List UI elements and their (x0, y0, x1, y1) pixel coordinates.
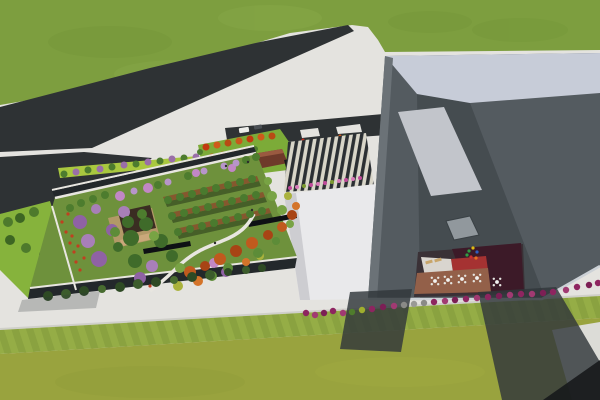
flowering-shrub (452, 297, 458, 303)
flowering-shrub (463, 296, 469, 302)
garden-tree (264, 177, 272, 185)
garden-tree (131, 188, 138, 195)
patio-table-set (458, 275, 467, 284)
ground-flower (68, 241, 71, 244)
garden-tree (89, 195, 97, 203)
flowering-shrub (574, 284, 580, 290)
bush (29, 207, 39, 217)
garden-tree (188, 190, 196, 198)
bush (39, 250, 49, 260)
garden-tree (168, 212, 176, 220)
curb-line (0, 295, 600, 329)
scene-canvas (0, 0, 600, 400)
flowering-shrub (391, 303, 397, 309)
garden-tree (139, 217, 153, 231)
striped-plaza (284, 133, 374, 192)
ground-flower (66, 212, 69, 215)
garden-north-facade (52, 147, 257, 198)
garden-tree (209, 258, 219, 268)
street-tree (79, 286, 89, 296)
chair (437, 283, 439, 285)
playground-equipment (469, 255, 472, 258)
street-tree (121, 162, 128, 169)
street-tree (85, 167, 92, 174)
flowering-shrub (359, 307, 365, 313)
footpath-bottom-right (552, 322, 600, 400)
chair (450, 276, 452, 278)
person (225, 165, 227, 167)
chair (473, 280, 475, 282)
garden-tree (228, 164, 236, 172)
planter-flower (349, 136, 352, 139)
chair (450, 282, 452, 284)
patio-table-set (431, 277, 440, 286)
flowering-shrub (431, 299, 437, 305)
flowering-shrub (303, 310, 309, 316)
main-building-inner-slope (417, 94, 545, 298)
street-tree (133, 161, 140, 168)
low-white-building (284, 184, 380, 300)
table (495, 280, 499, 284)
chair (473, 274, 475, 276)
red-tree (252, 146, 258, 152)
traffic-island (300, 128, 320, 138)
chair (499, 284, 501, 286)
planter-flower (295, 185, 299, 189)
red-tree (197, 149, 203, 155)
planter-flower (330, 180, 334, 184)
flowering-shrub (401, 302, 407, 308)
flowering-shrub (312, 312, 318, 318)
winding-garden-path (150, 214, 254, 291)
red-tree (258, 134, 265, 141)
garden-tree (258, 207, 266, 215)
bush (21, 243, 31, 253)
garden-tree (149, 231, 159, 241)
courtyard (414, 243, 525, 297)
garden-tree (134, 272, 146, 284)
playground (465, 246, 478, 259)
garden-tree (221, 163, 228, 170)
chair (464, 281, 466, 283)
garden-pavilion (108, 205, 160, 248)
entrance-pavilion (247, 149, 288, 170)
red-trees (197, 133, 276, 161)
flowering-shrub (474, 295, 480, 301)
courtyard-terrace (414, 268, 491, 294)
grass-field-upper (0, 0, 600, 105)
road-plaza-crossing (225, 114, 388, 146)
garden-tree (223, 263, 233, 273)
patio-table-set (444, 276, 453, 285)
garden-tree (198, 222, 206, 230)
garden-tree (174, 228, 182, 236)
planter-flower (323, 181, 327, 185)
patio-table-set (493, 278, 502, 287)
garden-tree (252, 153, 260, 161)
garden-tree (234, 213, 242, 221)
planter-flower (306, 140, 309, 143)
garden-tree (173, 281, 183, 291)
road-upper-branch (0, 25, 354, 152)
street-tree (242, 266, 250, 274)
flowering-shrub (411, 301, 417, 307)
garden-tree (137, 209, 147, 219)
planter-flower (354, 136, 357, 139)
playground-equipment (474, 256, 477, 259)
building-base-edge (368, 266, 600, 299)
street-tree (205, 270, 215, 280)
table (475, 276, 479, 280)
chair (444, 282, 446, 284)
red-tree (247, 136, 254, 143)
street-tree (258, 264, 266, 272)
garden-tree (263, 230, 273, 240)
courtyard-maroon-floor (452, 243, 524, 293)
flowering-shrub (550, 289, 556, 295)
street-tree (98, 285, 106, 293)
roof-hatch-panel (446, 216, 479, 240)
rooftop-garden-lawn (30, 152, 297, 288)
red-tree (220, 152, 227, 159)
main-building-mass (368, 53, 600, 299)
grass-texture (48, 5, 568, 88)
planter-flower (302, 139, 305, 142)
planter-flower (316, 182, 320, 186)
flowering-shrub (507, 292, 513, 298)
flowering-shrub (369, 306, 375, 312)
flowering-shrub (442, 298, 448, 304)
lounge-chair (425, 260, 433, 265)
chair (431, 283, 433, 285)
vehicles (239, 124, 263, 133)
ground-flowers (60, 212, 159, 287)
garden-tree (91, 251, 107, 267)
garden-tree (222, 216, 230, 224)
playground-equipment (471, 246, 474, 249)
garden-tree (252, 191, 260, 199)
ground-flower (76, 244, 79, 247)
planter-flower (344, 178, 348, 182)
planter-flower (337, 179, 341, 183)
garden-tree (228, 197, 236, 205)
garden-tree (123, 230, 139, 246)
table (433, 279, 437, 283)
lawn-striped-band (0, 296, 600, 354)
flowering-shrub (349, 309, 355, 315)
flowering-shrub (496, 293, 502, 299)
ground-flower (156, 278, 159, 281)
flowering-shrub (421, 300, 427, 306)
main-building-left-face (368, 56, 393, 299)
bus-shelter-canopy (284, 156, 312, 175)
plaza-flowers (288, 176, 362, 190)
flowering-shrub (340, 310, 346, 316)
orchard-planters (163, 176, 273, 239)
garden-tree (242, 156, 250, 164)
flowering-shrub (380, 304, 386, 310)
garden-tree (212, 184, 220, 192)
chair (458, 275, 460, 277)
garden-tree (200, 261, 210, 271)
street-trees (61, 154, 200, 178)
chair (493, 278, 495, 280)
garden-tree (192, 169, 200, 177)
skylight-panel (398, 107, 482, 196)
garden-tree (110, 227, 120, 237)
ground-flower (78, 268, 81, 271)
garden-tree (77, 199, 85, 207)
chair (437, 277, 439, 279)
street-tree (61, 289, 71, 299)
ground-flower (148, 284, 151, 287)
bush (3, 217, 13, 227)
bush (5, 235, 15, 245)
bench-wall (248, 213, 297, 227)
bench-wall (143, 241, 191, 254)
street-tree (224, 268, 232, 276)
chair (458, 281, 460, 283)
garden-tree (277, 205, 287, 215)
cast-shadows (18, 287, 600, 400)
lawn-texture (55, 357, 485, 398)
garden-tree (253, 248, 263, 258)
playground-equipment (467, 249, 470, 252)
street-tree (73, 169, 80, 176)
people (214, 161, 253, 244)
garden-tree (193, 276, 203, 286)
entrance-pavilion-roof-edge (247, 149, 284, 159)
chair (431, 277, 433, 279)
ground-flower (64, 230, 67, 233)
table (460, 277, 464, 281)
planter-flower (309, 183, 313, 187)
flowering-shrub (330, 308, 336, 314)
red-tree (242, 148, 249, 155)
garden-tree (210, 219, 218, 227)
garden-tree (106, 224, 118, 236)
garden-tree (166, 250, 178, 262)
garden-tree (248, 175, 256, 183)
tables (431, 274, 502, 287)
garden-tree (246, 210, 254, 218)
garden-tree (240, 194, 248, 202)
person (247, 161, 249, 163)
garden-tree (224, 181, 232, 189)
vehicle (254, 124, 263, 129)
street-tree (151, 277, 161, 287)
garden-tree (216, 200, 224, 208)
flowering-shrub (321, 310, 327, 316)
red-tree (269, 133, 276, 140)
red-tree (214, 142, 221, 149)
garden-tree (91, 204, 101, 214)
garden-tree (287, 210, 297, 220)
island-flowers (302, 135, 361, 144)
garden-tree (272, 237, 280, 245)
garden-tree (180, 209, 188, 217)
garden-tree (284, 192, 292, 200)
red-tree (209, 154, 216, 161)
garden-tree (204, 203, 212, 211)
table (446, 278, 450, 282)
garden-tree (221, 267, 231, 277)
garden-tree (214, 253, 226, 265)
garden-tree (242, 258, 250, 266)
planter-flower (358, 176, 362, 180)
garden-tree (176, 193, 184, 201)
playground-equipment (475, 250, 478, 253)
garden-tree (200, 187, 208, 195)
red-tree (231, 150, 238, 157)
garden-tree (143, 183, 153, 193)
garden-tree (256, 252, 264, 260)
road-lower-branch (0, 152, 152, 214)
garden-tree (113, 242, 123, 252)
garden-tree (146, 260, 158, 272)
garden-tree (66, 204, 74, 212)
garden-west-walkway (52, 206, 76, 290)
garden-tree (192, 206, 200, 214)
planter-flower (339, 135, 342, 138)
street-tree (181, 155, 188, 162)
flowering-shrub (518, 291, 524, 297)
flowering-shrub (595, 280, 600, 286)
courtyard-white-floor (421, 257, 454, 281)
garden-tree (175, 263, 185, 273)
planter-flower (310, 140, 313, 143)
traffic-island (336, 124, 362, 134)
street-tree (145, 159, 152, 166)
flowering-shrub (563, 287, 569, 293)
garden-tree (81, 234, 95, 248)
bush (15, 213, 25, 223)
flowering-shrub (540, 290, 546, 296)
street-tree (61, 171, 68, 178)
ground-flower (60, 220, 63, 223)
courtyard-red-floor (451, 256, 489, 279)
lawn-left-strip (0, 201, 78, 298)
garden-tree (73, 215, 87, 229)
red-tree (225, 140, 232, 147)
red-tree (236, 138, 243, 145)
street-tree (170, 276, 178, 284)
low-white-building-shading (284, 193, 310, 300)
entrance-lawn (198, 129, 298, 176)
planter-flower (314, 141, 317, 144)
south-parapet-path (30, 257, 297, 288)
garden-tree (164, 196, 172, 204)
vehicle (239, 127, 250, 134)
facade-trees (43, 264, 266, 301)
garden-tree (236, 178, 244, 186)
street-tree (169, 156, 176, 163)
garden-tree (184, 172, 192, 180)
street-tree (115, 282, 125, 292)
planter-flower (318, 141, 321, 144)
architectural-aerial-render (0, 0, 600, 400)
person (214, 242, 216, 244)
garden-tree (233, 160, 240, 167)
street-tree (133, 279, 143, 289)
garden-tree (184, 266, 196, 278)
garden-tree (277, 222, 287, 232)
north-parapet-path (52, 146, 254, 190)
chair (444, 276, 446, 278)
planter-flower (358, 137, 361, 140)
garden-tree (230, 245, 242, 257)
garden-tree (292, 202, 300, 210)
garden-tree (286, 220, 294, 228)
main-building-roof-band (385, 53, 600, 103)
planter-flower (288, 186, 292, 190)
garden-tree (115, 191, 125, 201)
garden-top-path (55, 153, 256, 198)
flowering-shrub (485, 294, 491, 300)
red-tree (203, 144, 210, 151)
ground-flower (82, 256, 85, 259)
garden-tree (165, 179, 172, 186)
courtyard-floor (414, 244, 525, 297)
garden-trees (66, 153, 300, 291)
planter-flower (302, 184, 306, 188)
planter-flower (344, 135, 347, 138)
garden-tree (122, 216, 134, 228)
street-tree (157, 158, 164, 165)
lawn-lower-field (0, 318, 600, 400)
garden-tree (207, 271, 217, 281)
garden-south-facade (28, 257, 297, 299)
main-building (368, 53, 600, 299)
chair (499, 278, 501, 280)
garden-tree (154, 181, 162, 189)
street-tree (187, 272, 197, 282)
garden-tree (128, 254, 142, 268)
flowering-shrub (529, 291, 535, 297)
lime-planting-strip (58, 156, 200, 178)
street-tree (43, 291, 53, 301)
patio-table-set (473, 274, 482, 283)
garden-tree (118, 206, 130, 218)
garden-tree (267, 191, 277, 201)
ground-flower (74, 260, 77, 263)
ground-flower (70, 234, 73, 237)
street-tree (109, 164, 116, 171)
garden-tree (101, 191, 109, 199)
flowering-shrub (586, 282, 592, 288)
chair (479, 280, 481, 282)
pavement-ground (0, 0, 600, 400)
street-tree (97, 166, 104, 173)
chair (493, 284, 495, 286)
ground-flower (72, 250, 75, 253)
garden-tree (246, 237, 258, 249)
chair (479, 274, 481, 276)
garden-tree (201, 168, 208, 175)
garden-tree (186, 225, 194, 233)
shrub-row (303, 280, 600, 318)
person (251, 209, 253, 211)
playground-equipment (465, 253, 468, 256)
planter-flower (351, 177, 355, 181)
loungers (425, 258, 442, 265)
chair (464, 275, 466, 277)
street-tree (193, 154, 200, 161)
lounge-chair (434, 258, 442, 263)
garden-tree (154, 234, 168, 248)
left-bushes (3, 207, 49, 260)
